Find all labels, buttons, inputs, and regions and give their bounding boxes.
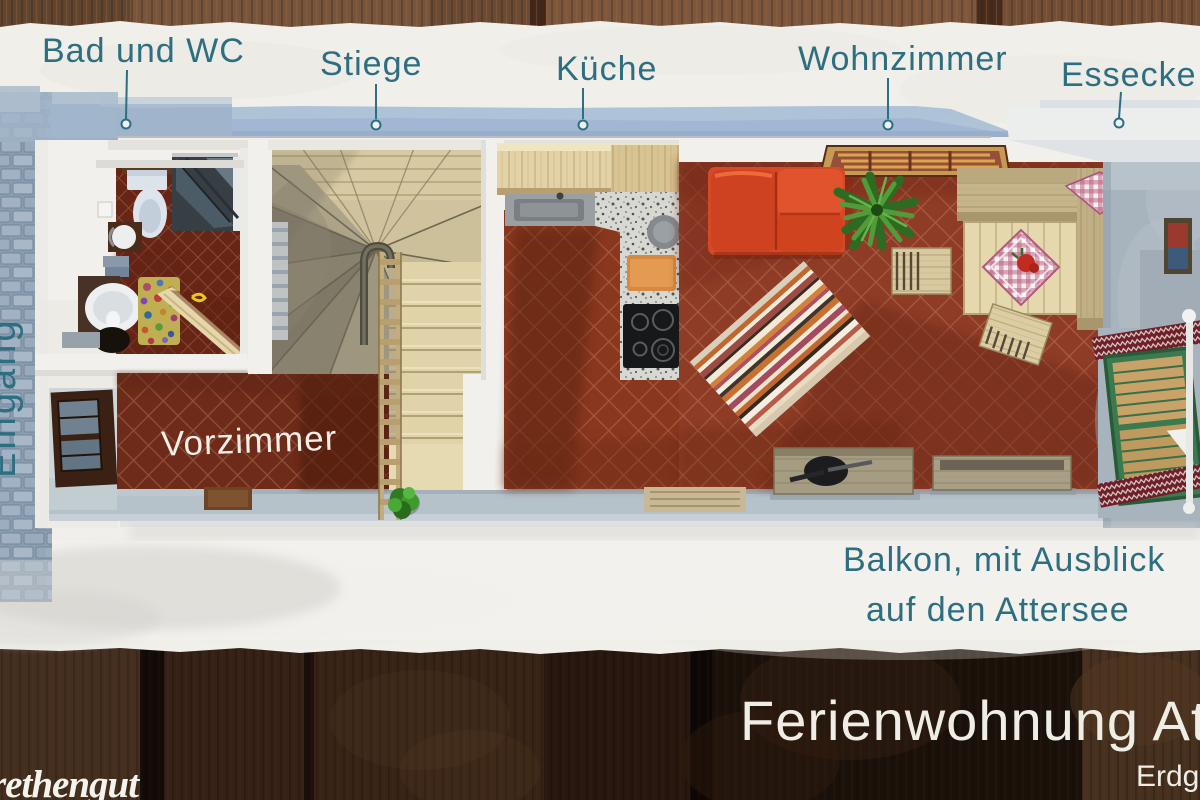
svg-text:Balkon, mit Ausblick: Balkon, mit Ausblick: [843, 541, 1165, 579]
svg-text:Erdge: Erdge: [1136, 760, 1200, 793]
svg-text:Küche: Küche: [556, 50, 657, 88]
svg-text:Eingang: Eingang: [0, 318, 24, 478]
svg-text:auf den Attersee: auf den Attersee: [866, 591, 1130, 629]
svg-text:Ferienwohnung Atte: Ferienwohnung Atte: [740, 689, 1200, 752]
svg-text:Wohnzimmer: Wohnzimmer: [798, 40, 1008, 78]
svg-text:Essecke: Essecke: [1061, 56, 1197, 94]
svg-text:Bad und WC: Bad und WC: [42, 32, 245, 70]
svg-text:garethengut: garethengut: [0, 763, 140, 800]
svg-text:Vorzimmer: Vorzimmer: [160, 419, 338, 464]
svg-text:Stiege: Stiege: [320, 45, 422, 83]
